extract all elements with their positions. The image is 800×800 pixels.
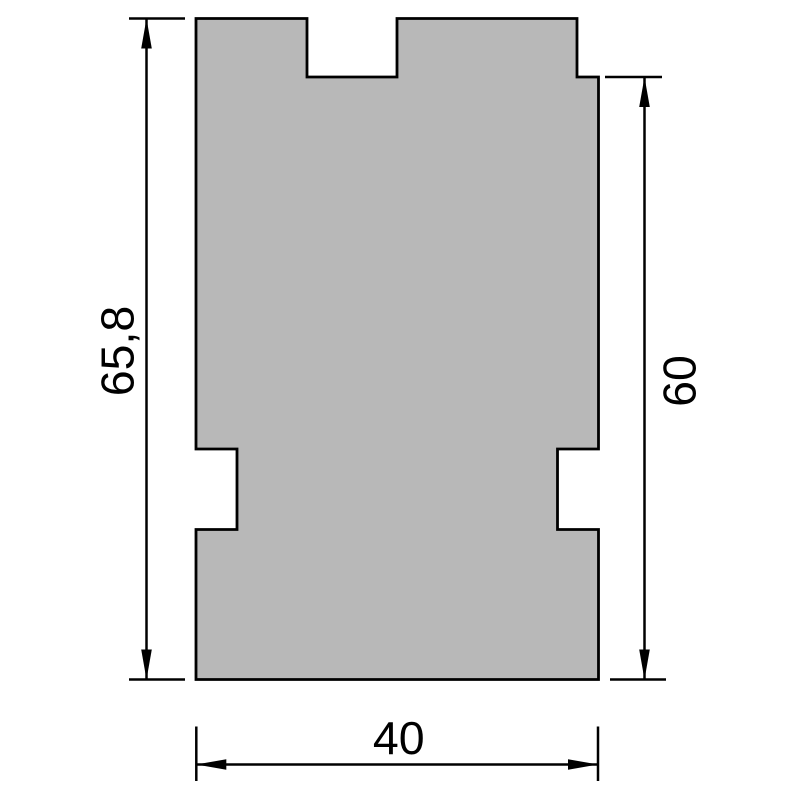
svg-text:60: 60 (654, 355, 706, 407)
svg-text:65,8: 65,8 (91, 306, 143, 397)
svg-text:40: 40 (373, 712, 425, 764)
